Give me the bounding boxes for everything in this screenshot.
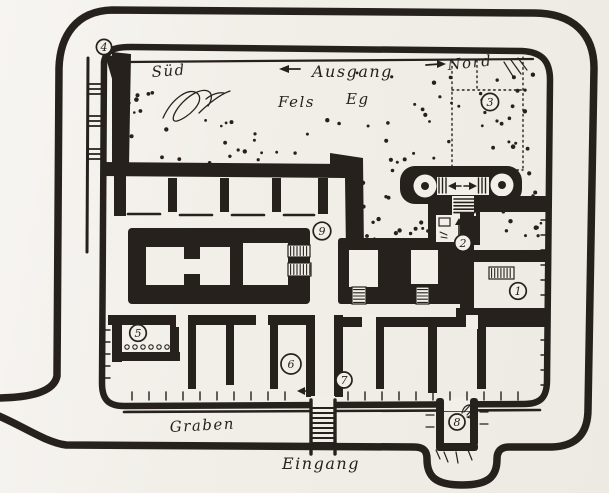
label-eingang: Eingang xyxy=(281,454,360,473)
map-marker-3: 3 xyxy=(481,93,498,110)
svg-text:7: 7 xyxy=(341,374,348,387)
map-marker-7: 7 xyxy=(336,372,352,388)
map-marker-9: 9 xyxy=(313,222,331,240)
label-nord: Nord xyxy=(446,51,494,74)
svg-text:9: 9 xyxy=(319,225,326,238)
west-double-wall xyxy=(87,58,88,252)
map-marker-4: 4 xyxy=(96,39,111,54)
map-canvas: Süd Ausgang Nord Fels Eg Graben Eingang … xyxy=(0,0,609,493)
dotted-area-outline xyxy=(452,55,523,172)
label-eg: Eg xyxy=(345,90,370,108)
bridge-ladder-icon xyxy=(313,408,333,448)
north-casemates xyxy=(114,176,328,216)
map-marker-6: 6 xyxy=(281,354,301,374)
south-casemates xyxy=(108,313,548,397)
svg-text:2: 2 xyxy=(459,237,467,250)
map-marker-5: 5 xyxy=(130,325,147,342)
label-graben: Graben xyxy=(169,415,235,436)
arrow-left-icon xyxy=(279,65,289,73)
svg-text:6: 6 xyxy=(288,358,295,371)
label-ausgang: Ausgang xyxy=(310,62,393,81)
svg-text:1: 1 xyxy=(515,285,522,298)
scanned-map-page: Süd Ausgang Nord Fels Eg Graben Eingang … xyxy=(0,0,609,493)
east-wing xyxy=(456,196,548,318)
arrow-left-icon xyxy=(297,387,305,395)
svg-text:4: 4 xyxy=(100,41,108,54)
map-marker-1: 1 xyxy=(510,283,527,300)
svg-text:3: 3 xyxy=(487,96,494,109)
door-sills xyxy=(128,214,314,215)
svg-text:5: 5 xyxy=(135,327,142,340)
map-marker-8: 8 xyxy=(449,414,465,430)
map-marker-2: 2 xyxy=(455,235,472,252)
label-fels: Fels xyxy=(277,93,315,111)
stair-icon xyxy=(489,267,514,279)
west-hall-building xyxy=(128,228,310,304)
storage-circles xyxy=(125,345,169,349)
arrow-right-icon xyxy=(437,60,446,68)
label-sued: Süd xyxy=(151,61,186,81)
signature-scribble xyxy=(163,90,230,121)
svg-text:8: 8 xyxy=(454,416,461,429)
